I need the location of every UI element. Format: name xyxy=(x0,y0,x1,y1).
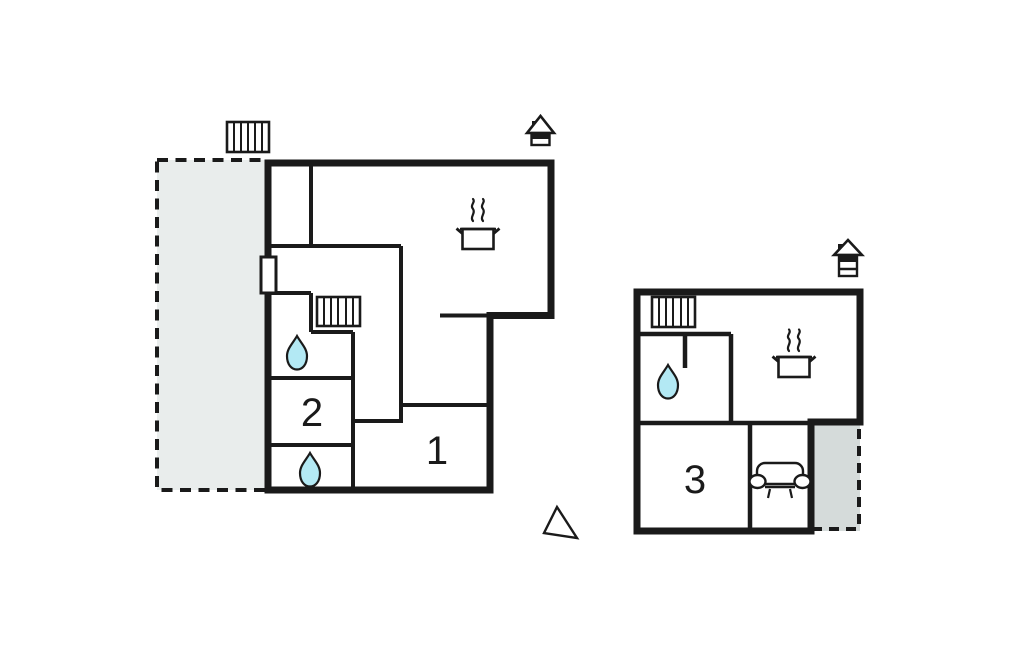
terrace-main xyxy=(157,160,268,490)
room1-label: 1 xyxy=(426,429,448,473)
sofa-armrest-right xyxy=(795,475,811,488)
floorplan-canvas: 2 1 xyxy=(0,0,1024,652)
house-level-icon-annex xyxy=(834,240,862,276)
sofa-armrest-left xyxy=(750,475,766,488)
stairs-icon-entrance xyxy=(227,122,269,152)
pot-body xyxy=(463,229,494,249)
main-house-plan: 2 1 xyxy=(157,160,551,490)
house-marked-level xyxy=(839,255,857,262)
stairs-icon-main xyxy=(317,297,360,326)
room3-label: 3 xyxy=(684,458,706,502)
floorplan-svg: 2 1 xyxy=(0,0,1024,652)
stairs-icon-annex xyxy=(652,297,695,327)
pot-body xyxy=(779,357,810,377)
room2-label: 2 xyxy=(301,391,323,435)
annex-plan: 3 xyxy=(637,292,860,531)
terrace-annex xyxy=(811,422,860,531)
house-level-icon-main xyxy=(527,116,554,145)
north-arrow-icon xyxy=(544,507,577,538)
house-marked-level xyxy=(532,133,550,139)
entrance-door-icon xyxy=(261,257,276,293)
house-roof xyxy=(527,116,554,133)
